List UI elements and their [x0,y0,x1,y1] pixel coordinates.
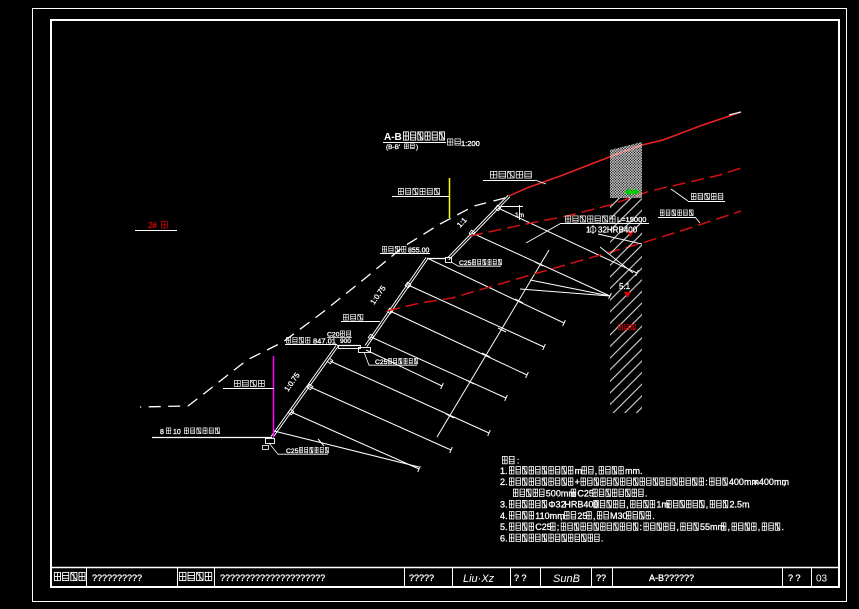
svg-text:C25: C25 [535,522,552,532]
svg-text:25: 25 [577,511,587,521]
svg-text:HRB400: HRB400 [564,500,598,510]
svg-text:,: , [595,466,598,476]
svg-text:;: ; [557,522,560,532]
svg-text:Liu·Xz: Liu·Xz [463,573,495,585]
svg-text:4.: 4. [500,511,508,521]
svg-text:10: 10 [173,429,181,436]
svg-text:? ?: ? ? [788,573,801,583]
svg-text:.: . [652,511,655,521]
svg-text:,: , [560,511,563,521]
svg-text:??: ?? [596,573,606,583]
svg-text:.: . [747,500,750,510]
svg-text:? ?: ? ? [514,573,527,583]
svg-text:1:200: 1:200 [461,139,480,148]
svg-text::: : [705,477,708,487]
svg-text:+: + [575,477,580,487]
svg-text:?????????????????????: ????????????????????? [220,573,325,583]
svg-text:,: , [593,511,596,521]
svg-text:.: . [645,488,648,498]
svg-text:??????????: ?????????? [92,573,142,583]
svg-text:03: 03 [816,574,828,585]
svg-text::: : [640,522,643,532]
svg-text:,: , [728,522,731,532]
svg-text:×: × [753,477,758,487]
svg-text:A-B??????: A-B?????? [649,573,694,583]
svg-text:2#: 2# [148,221,157,230]
svg-text:900: 900 [340,338,351,345]
svg-text:2.: 2. [500,477,508,487]
svg-text:,: , [626,500,629,510]
svg-text:): ) [416,144,418,151]
svg-text:L=15000: L=15000 [617,215,646,224]
svg-text:,: , [706,500,709,510]
svg-text:5.: 5. [500,522,508,532]
svg-text:Φ32: Φ32 [548,500,565,510]
svg-text:mm.: mm. [625,466,643,476]
svg-text:?????: ????? [409,573,434,583]
svg-text:A-B: A-B [384,132,402,143]
svg-text:3.: 3. [500,500,508,510]
svg-text:C25: C25 [577,488,594,498]
svg-text:1.: 1. [500,466,508,476]
svg-text:6.: 6. [500,533,508,543]
svg-text:,: , [676,522,679,532]
svg-text:SunB: SunB [553,573,580,585]
svg-text:,: , [758,522,761,532]
svg-text:5.1: 5.1 [619,282,631,291]
svg-text:M30: M30 [610,511,628,521]
svg-text:.: . [601,533,604,543]
svg-text:1m: 1m [515,212,524,219]
svg-text:(B-B': (B-B' [386,144,400,151]
svg-text:.: . [781,522,784,532]
svg-text::: : [517,456,519,465]
svg-text:8: 8 [160,429,164,436]
svg-text:,: , [783,477,786,487]
svg-text:32HRB400: 32HRB400 [598,226,638,235]
svg-text:m: m [575,466,583,476]
